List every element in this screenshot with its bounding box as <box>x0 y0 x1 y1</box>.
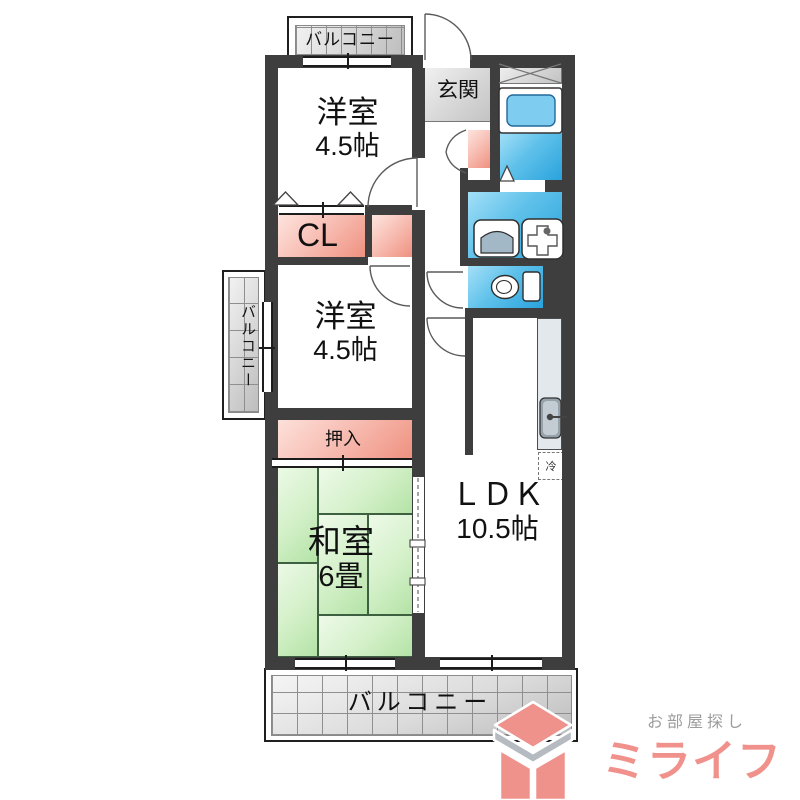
tatami-mat <box>318 467 413 514</box>
brand-name: ミライフ <box>582 737 800 786</box>
closet-folding-front <box>279 205 364 215</box>
wall <box>365 205 412 215</box>
bedroom1-label: 洋室 4.5帖 <box>280 96 415 161</box>
bedroom2-label: 洋室 4.5帖 <box>278 300 413 365</box>
folding-door-triangle <box>338 192 363 205</box>
door-opening <box>412 158 425 210</box>
toilet-room <box>468 266 543 308</box>
door-opening <box>368 257 412 265</box>
wall <box>543 266 562 308</box>
kitchen-counter <box>537 318 562 450</box>
bifold-door-icon <box>446 130 466 173</box>
bedroom2-size: 4.5帖 <box>278 335 413 365</box>
toilet-door-arc <box>427 272 463 308</box>
japanese-room-size: 6畳 <box>275 561 407 593</box>
balcony-bottom-label: バルコニー <box>335 690 505 717</box>
wall <box>365 213 372 257</box>
refrigerator-label: 冷 <box>546 458 557 474</box>
refrigerator-space: 冷 <box>538 452 564 480</box>
wall <box>545 180 562 192</box>
hall-storage <box>468 130 490 168</box>
entrance-label: 玄関 <box>427 79 489 103</box>
japanese-room-name: 和室 <box>275 524 407 561</box>
bedroom1-door-arc <box>368 158 417 207</box>
bedroom2-name: 洋室 <box>278 300 413 335</box>
entrance-opening <box>423 55 470 68</box>
wall <box>465 318 473 455</box>
japanese-room-label: 和室 6畳 <box>275 524 407 593</box>
tatami-mat <box>318 615 413 657</box>
window <box>295 658 395 669</box>
balcony-top-label: バルコニー <box>295 30 405 49</box>
ldk-size: 10.5帖 <box>430 513 565 544</box>
wall <box>278 408 412 420</box>
ldk-label: ＬＤＫ 10.5帖 <box>430 478 565 544</box>
bedroom1-size: 4.5帖 <box>280 131 415 161</box>
bathtub-icon <box>499 88 562 133</box>
wall <box>562 55 575 670</box>
ldk-name: ＬＤＫ <box>430 478 565 513</box>
floor-plan: バルコニー バルコニー バルコニー 冷 <box>0 0 800 800</box>
wall <box>465 308 575 318</box>
wall <box>460 258 562 266</box>
oshiire-label: 押入 <box>302 429 384 449</box>
ldk-door-arc <box>427 318 465 356</box>
closet-cl-label: CL <box>290 218 345 254</box>
wall <box>490 66 500 183</box>
window <box>262 302 273 392</box>
wall <box>465 180 500 192</box>
brand-tagline: お部屋探し <box>632 714 762 732</box>
washroom <box>468 190 562 258</box>
wall <box>278 257 368 265</box>
balcony-left-label: バルコニー <box>233 284 255 408</box>
oshiire-sliding-front <box>272 458 412 468</box>
sliding-partition-opening <box>413 477 424 613</box>
window <box>440 658 542 669</box>
door-opening <box>500 182 545 192</box>
brand-cube-logo-icon <box>488 698 578 800</box>
window <box>303 56 391 67</box>
door-opening <box>460 266 468 308</box>
closet-2 <box>372 215 412 257</box>
bathroom-floor <box>498 133 562 180</box>
entrance-door-arc <box>425 14 471 60</box>
bedroom1-name: 洋室 <box>280 96 415 131</box>
